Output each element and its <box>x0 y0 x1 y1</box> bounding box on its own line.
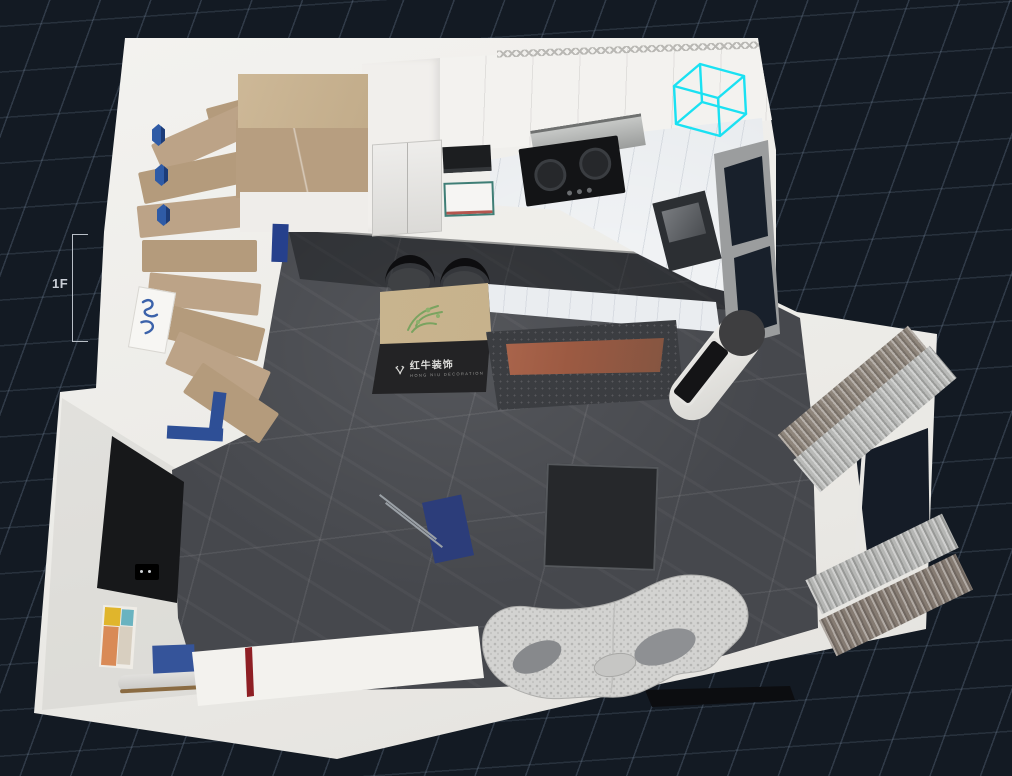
paint-stripe <box>117 626 133 665</box>
stair-landing[interactable] <box>238 74 368 128</box>
painting[interactable] <box>99 605 137 669</box>
stair-blue-panel[interactable] <box>271 224 288 263</box>
watermark: 红牛装饰 HONG NIU DECORATION <box>393 350 484 387</box>
sofa[interactable] <box>465 565 765 715</box>
stair-landing-base <box>240 192 368 232</box>
selection-cube[interactable] <box>666 56 754 148</box>
ac-top-cap <box>719 310 765 356</box>
knob-icon <box>587 187 593 193</box>
refrigerator[interactable] <box>372 140 442 237</box>
floor-bracket <box>72 234 88 342</box>
paint-stripe <box>104 607 121 626</box>
knob-icon <box>567 190 573 196</box>
glass-basin[interactable] <box>443 181 494 217</box>
floor-label[interactable]: 1F <box>52 276 68 291</box>
stair-landing-front[interactable] <box>236 120 368 198</box>
island-plant-icon <box>398 296 450 344</box>
tv-logo-badge <box>135 564 159 580</box>
burner-icon <box>532 157 568 193</box>
stair-step[interactable] <box>142 240 257 272</box>
3d-viewport[interactable]: 红牛装饰 HONG NIU DECORATION <box>0 0 1012 776</box>
coffee-table[interactable] <box>543 463 659 571</box>
bull-logo-icon <box>394 363 406 378</box>
microwave-oven[interactable] <box>442 145 491 173</box>
paint-stripe <box>121 609 134 626</box>
burner-icon <box>577 146 613 182</box>
blue-scribble-icon <box>129 287 173 350</box>
paint-stripe <box>101 626 119 666</box>
watermark-tagline: HONG NIU DECORATION <box>410 371 484 378</box>
knob-icon <box>577 189 583 195</box>
